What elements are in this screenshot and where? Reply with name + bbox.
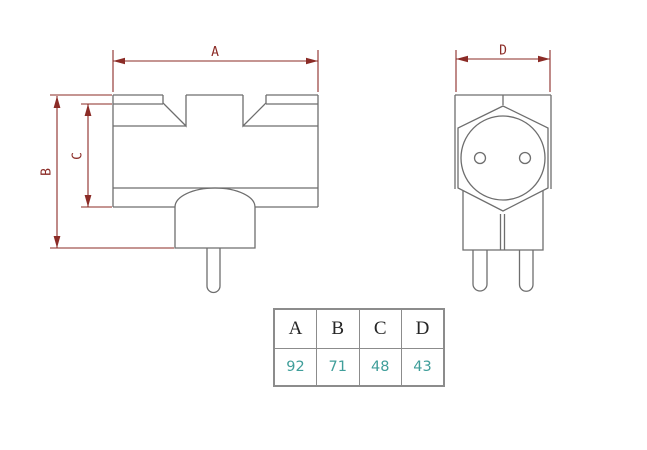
front-view	[113, 95, 318, 292]
front-body-lower-edges	[113, 188, 318, 207]
dimension-c: C	[71, 104, 113, 207]
dimension-b-extension-lines	[50, 95, 174, 248]
front-dome	[175, 188, 255, 248]
side-hex-face	[458, 106, 548, 211]
table-value-b: 71	[317, 349, 360, 387]
table-header-b: B	[317, 309, 360, 349]
side-view	[455, 95, 551, 291]
table-header-d: D	[402, 309, 445, 349]
drawing-sheet: A B C D A	[0, 0, 647, 450]
front-slot-shelf-edges	[113, 104, 318, 126]
table-header-a: A	[274, 309, 317, 349]
dimension-a-arrowhead-right	[306, 58, 318, 64]
front-socket-slot-right	[243, 95, 266, 126]
dimension-table-header-row: A B C D	[274, 309, 444, 349]
side-pin-hole-right	[520, 153, 531, 164]
dimension-table-value-row: 92 71 48 43	[274, 349, 444, 387]
side-pin-hole-left	[475, 153, 486, 164]
dimension-label-d: D	[499, 44, 507, 59]
table-value-c: 48	[359, 349, 402, 387]
dimension-c-arrowhead-bottom	[85, 195, 92, 207]
table-value-a: 92	[274, 349, 317, 387]
side-socket-recess-circle	[461, 116, 545, 200]
dimension-d: D	[456, 44, 550, 93]
dimension-c-extension-lines	[81, 104, 112, 207]
table-header-c: C	[359, 309, 402, 349]
dimension-c-arrowhead-top	[85, 104, 92, 116]
table-value-d: 43	[402, 349, 445, 387]
side-pin-left	[473, 250, 487, 291]
dimension-a: A	[113, 45, 318, 92]
dimension-b-arrowhead-bottom	[54, 236, 61, 248]
dimension-label-b: B	[40, 168, 55, 176]
dimension-label-a: A	[211, 45, 219, 60]
side-center-seam	[501, 214, 505, 250]
dimension-d-arrowhead-left	[456, 56, 468, 62]
dimension-b-arrowhead-top	[54, 96, 61, 108]
side-body-outline	[455, 95, 551, 189]
front-body-outline	[113, 95, 318, 207]
front-socket-slot-left	[163, 95, 186, 126]
dimension-table: A B C D 92 71 48 43	[273, 308, 445, 387]
front-pin	[207, 248, 220, 292]
dimension-label-c: C	[71, 152, 86, 160]
dimension-b: B	[40, 95, 175, 248]
side-pin-right	[520, 250, 534, 291]
dimension-a-arrowhead-left	[113, 58, 125, 64]
dimension-d-arrowhead-right	[538, 56, 550, 62]
